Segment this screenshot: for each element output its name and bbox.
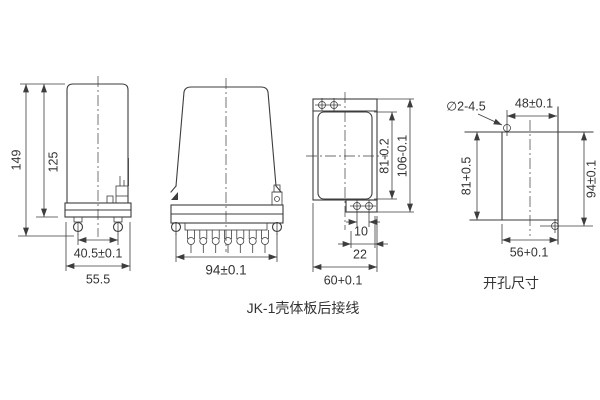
plan-screw-holes-bottom <box>350 200 376 212</box>
dim-base-width-label: 55.5 <box>86 272 110 286</box>
mounting-studs-front <box>172 222 282 235</box>
dim-case-depth-label: 81-0.2 <box>377 138 391 173</box>
dimension-overall-height: 149 <box>9 84 74 236</box>
dimension-case-height: 125 <box>36 84 60 217</box>
relay-cover-side <box>67 84 128 203</box>
plan-screw-holes-top <box>315 98 341 111</box>
dimension-cutout-height: 81+0.5 <box>459 132 477 220</box>
callout-mount-holes: ∅2-4.5 <box>446 99 502 125</box>
rear-terminals-side <box>107 158 129 203</box>
dim-hole-pitch-label: 10 <box>354 224 368 238</box>
dimension-cutout-width: 56+0.1 <box>502 240 558 259</box>
dimension-hole-y-spacing: 94±0.1 <box>584 132 598 226</box>
dimension-stud-spacing: 40.5±0.1 <box>74 234 123 260</box>
terminal-pins <box>188 230 269 253</box>
cutout-view: ∅2-4.5 48±0.1 81+0.5 94±0.1 56+0.1 开孔尺寸 <box>446 96 598 291</box>
dim-mount-stud-spacing-label: 94±0.1 <box>205 263 246 278</box>
dim-hole-offset-label: 22 <box>353 247 367 261</box>
dim-cutout-height-label: 81+0.5 <box>459 157 473 196</box>
front-view: 94±0.1 <box>171 78 283 278</box>
cutout-view-title: 开孔尺寸 <box>483 275 539 291</box>
drawing-caption: JK-1壳体板后接线 <box>247 300 360 316</box>
dim-overall-depth-label: 106-0.1 <box>395 135 409 177</box>
seal-tab <box>171 192 178 200</box>
dim-stud-spacing-label: 40.5±0.1 <box>74 246 123 260</box>
dim-overall-height-label: 149 <box>9 150 23 171</box>
dim-mount-holes-label: ∅2-4.5 <box>446 99 485 113</box>
dimension-hole-x-spacing: 48±0.1 <box>507 96 557 116</box>
cutout-outline <box>465 107 593 244</box>
relay-dimension-drawing: 149 125 40.5±0.1 55.5 <box>0 0 600 400</box>
relay-cover-front <box>171 87 282 205</box>
dim-hole-y-spacing-label: 94±0.1 <box>584 160 598 198</box>
dim-overall-width-label: 60+0.1 <box>324 273 363 287</box>
dimension-hole-offset: 22 <box>338 216 388 261</box>
plan-view: 81-0.2 106-0.1 10 22 60+0.1 <box>306 92 414 287</box>
dim-hole-x-spacing-label: 48±0.1 <box>515 96 553 110</box>
base-plate-front <box>171 205 283 230</box>
dim-case-height-label: 125 <box>46 152 60 173</box>
technical-drawing-page: 149 125 40.5±0.1 55.5 <box>0 0 600 400</box>
dim-cutout-width-label: 56+0.1 <box>510 245 549 259</box>
side-view: 149 125 40.5±0.1 55.5 <box>9 76 131 286</box>
